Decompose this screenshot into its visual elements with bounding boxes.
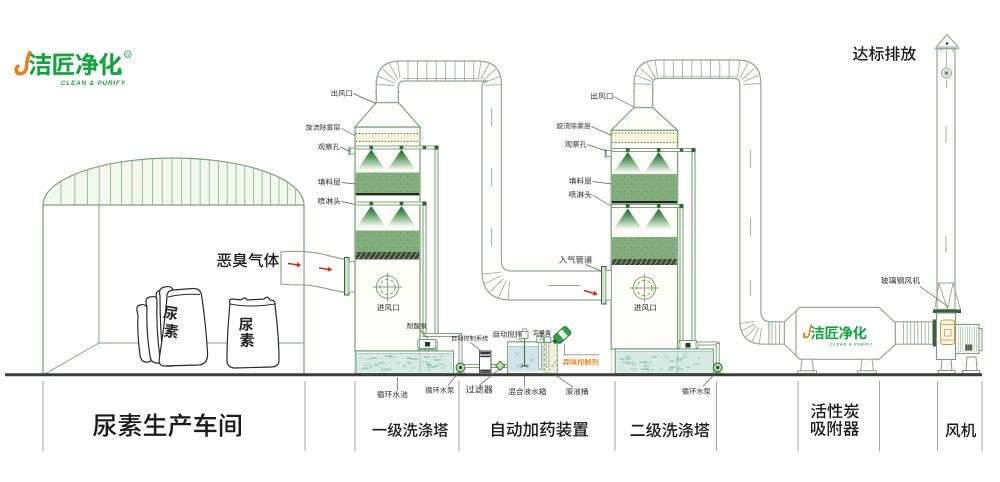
svg-text:CLEAN & PURIFY: CLEAN & PURIFY [830, 343, 873, 347]
svg-text:CLEAN & PURIFY: CLEAN & PURIFY [61, 80, 126, 87]
